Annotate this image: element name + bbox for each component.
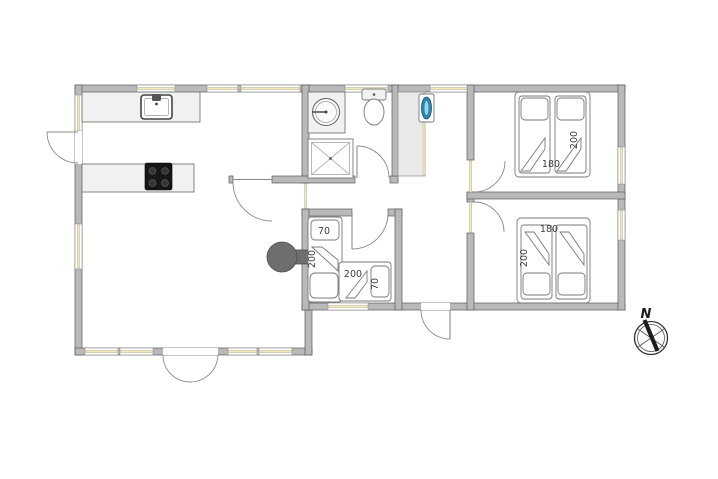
wall-bedroom-divider <box>467 192 625 199</box>
entrance-door <box>421 310 450 339</box>
toilet-icon <box>362 89 386 125</box>
smallroom-door <box>352 214 388 249</box>
dimension-label: 70 <box>318 226 330 237</box>
dimension-label: 200 <box>307 250 318 268</box>
opening-corridor-west <box>305 184 307 208</box>
smallroom-bed-horizontal: 200 70 <box>339 262 391 301</box>
opening-bedroom2-door <box>470 202 472 232</box>
compass-north-label: N <box>641 307 652 322</box>
window-west-2 <box>75 224 82 269</box>
duvet <box>310 273 338 298</box>
kitchen-island <box>82 164 194 192</box>
bedroom1-bed: 180 200 <box>515 92 590 177</box>
bedroom2-bed: 180 200 <box>517 218 590 303</box>
shower-icon <box>308 139 353 178</box>
wall-smallroom-east <box>395 209 402 310</box>
dimension-label: 180 <box>540 224 558 235</box>
floor-plan-canvas: 180 200 180 200 70 200 200 70 N <box>0 0 718 479</box>
washbasin-icon <box>312 99 340 126</box>
door-jamb-corridor <box>229 176 233 183</box>
window-south-smallroom <box>328 303 368 310</box>
opening-terrace-door <box>163 348 218 355</box>
wall-hall-east-upper <box>467 85 474 160</box>
window-east-bedroom1 <box>618 147 625 184</box>
bedroom1-door <box>474 161 505 192</box>
window-north-3 <box>241 85 300 92</box>
opening-side-door <box>75 131 82 164</box>
wall-hall-east-lower <box>467 233 474 310</box>
pillow <box>558 273 585 295</box>
wall-bathroom-east <box>392 85 398 176</box>
pillow <box>523 273 550 295</box>
window-south-4 <box>259 348 292 355</box>
window-east-bedroom2 <box>618 210 625 240</box>
cooktop-icon <box>145 163 172 190</box>
kitchen <box>82 92 200 192</box>
utility-closet <box>398 92 434 176</box>
water-heater-icon <box>419 94 434 122</box>
window-north-1 <box>137 85 175 92</box>
floor-plan-drawing: 180 200 180 200 70 200 200 70 N <box>0 0 718 479</box>
dimension-label: 200 <box>344 269 362 280</box>
window-south-2 <box>120 348 153 355</box>
bathroom-door <box>357 146 389 178</box>
window-south-3 <box>228 348 257 355</box>
kitchen-sink-icon <box>141 94 172 119</box>
pillow <box>557 98 584 120</box>
kitchen-tap-icon <box>152 94 161 101</box>
window-south-1 <box>85 348 118 355</box>
corridor-door <box>233 180 272 222</box>
opening-entrance-door <box>421 303 450 310</box>
dimension-label: 180 <box>542 159 560 170</box>
wall-smallroom-north-west <box>302 209 352 216</box>
dimension-label: 200 <box>519 249 530 267</box>
pillow <box>521 98 548 120</box>
dimension-label: 70 <box>370 278 381 290</box>
dimension-label: 200 <box>569 131 580 149</box>
smallroom-bed-vertical: 70 200 <box>307 217 342 302</box>
bedroom2-door <box>474 202 504 232</box>
opening-bedroom1-door <box>470 161 472 192</box>
window-west-1 <box>75 95 82 131</box>
window-north-2 <box>207 85 238 92</box>
wall-connector <box>305 303 312 355</box>
side-door <box>47 132 78 163</box>
compass-rose: N <box>635 307 668 355</box>
wall-bathroom-south-stub <box>390 176 398 183</box>
window-north-hall <box>430 85 467 92</box>
bathroom <box>308 89 386 178</box>
terrace-double-door <box>163 355 218 382</box>
